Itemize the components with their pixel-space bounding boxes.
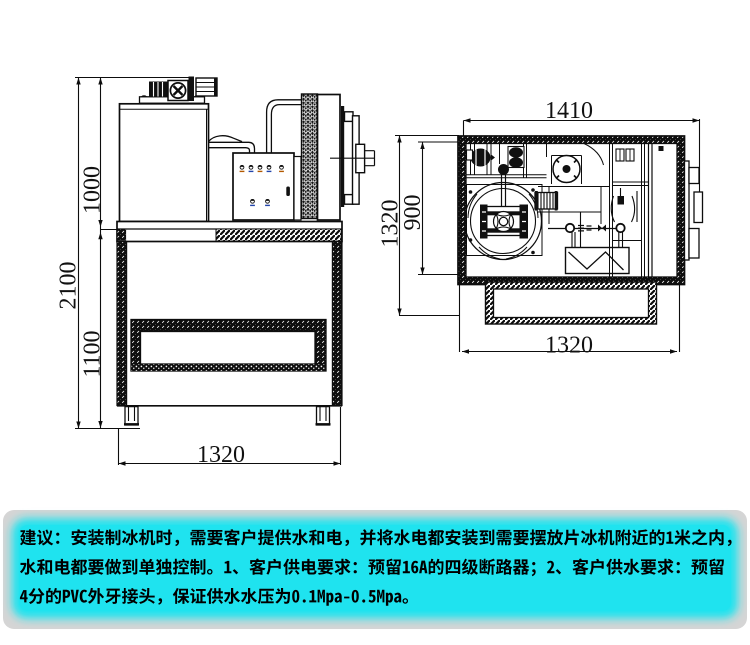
svg-text:900: 900	[400, 195, 426, 231]
svg-text:1100: 1100	[80, 330, 106, 377]
svg-text:1320: 1320	[197, 442, 245, 468]
svg-text:2100: 2100	[56, 262, 82, 310]
svg-text:1320: 1320	[545, 333, 593, 359]
svg-text:1000: 1000	[80, 166, 106, 214]
